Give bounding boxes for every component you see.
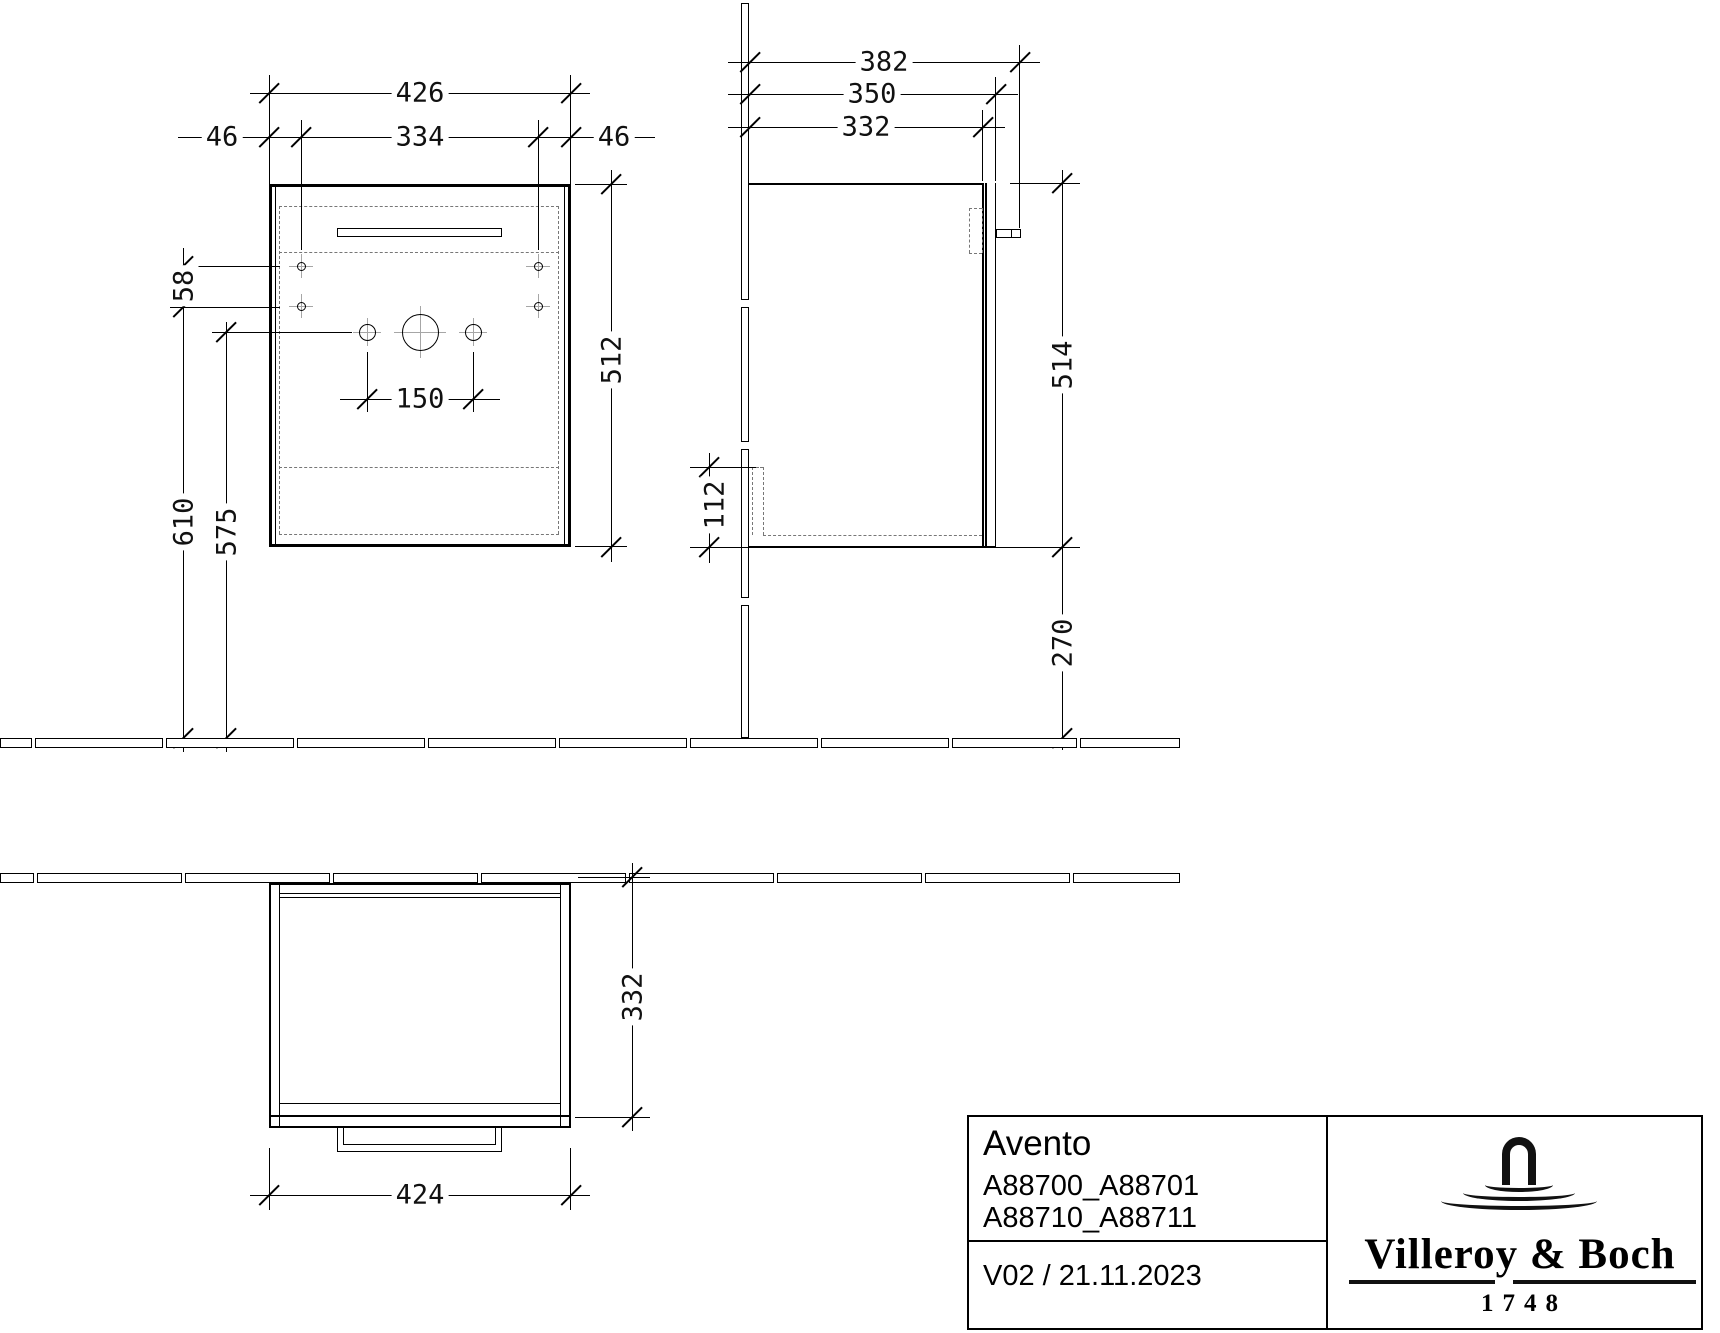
front-dashed-hinge-line — [279, 252, 559, 253]
dim-text-left-offset: 46 — [202, 123, 243, 152]
ext-line — [578, 877, 650, 878]
wall-segment — [741, 605, 749, 738]
dim-text-right-offset: 46 — [594, 123, 635, 152]
mounting-hole-bottom-left — [297, 302, 306, 311]
brand-underline-right — [1513, 1280, 1696, 1284]
ext-line — [1019, 45, 1020, 228]
mounting-hole-bottom-right — [534, 302, 543, 311]
side-bottom-panel-dashed — [763, 535, 982, 536]
mounting-hole-top-right — [534, 262, 543, 271]
dim-text-hole-row-spacing: 58 — [170, 266, 199, 307]
brand-founding-year: 1748 — [1481, 1290, 1567, 1318]
front-handle-slot — [337, 228, 502, 237]
side-hinge-dashed-right — [982, 208, 983, 253]
dim-text-floor-to-lower-holes: 610 — [170, 494, 199, 551]
ext-line — [570, 1148, 571, 1210]
dim-text-height: 512 — [598, 332, 627, 389]
plan-back-panel-line1 — [280, 893, 560, 894]
fixing-hole-right — [465, 324, 482, 341]
ext-line — [538, 120, 539, 250]
side-door-back-line — [985, 183, 987, 547]
title-block-divider-horizontal — [967, 1240, 1327, 1242]
mounting-hole-top-left — [297, 262, 306, 271]
ext-line — [982, 110, 983, 181]
plan-cabinet-outline — [269, 883, 571, 1128]
side-handle — [996, 229, 1021, 238]
dim-text-plan-depth: 332 — [619, 969, 648, 1026]
side-cabinet-bottom — [748, 546, 996, 549]
plan-handle-inner — [343, 1128, 496, 1145]
leader-recess-top — [690, 467, 756, 468]
side-recess-dashed-right — [763, 467, 764, 535]
side-recess-dashed-left — [752, 467, 753, 535]
bottom-ext-line — [690, 547, 750, 548]
title-block-divider-vertical — [1326, 1115, 1328, 1330]
ripple-arc-large — [1441, 1192, 1597, 1210]
front-cabinet-outline — [269, 184, 571, 547]
front-dashed-bottom-panel-line — [279, 467, 559, 468]
side-handle-inner-line — [1011, 230, 1012, 237]
side-hinge-dashed-bottom — [969, 253, 982, 254]
ext-line — [301, 120, 302, 250]
plan-door-back-line — [269, 1115, 571, 1117]
side-hinge-dashed-top — [969, 208, 982, 209]
front-right-panel-inner-line — [564, 187, 565, 544]
dim-text-plan-width: 424 — [392, 1181, 449, 1210]
plan-left-inner-line — [279, 885, 280, 1126]
dim-text-total-width: 426 — [392, 79, 449, 108]
ext-line — [367, 352, 368, 412]
technical-drawing-sheet: 426 46 334 46 512 150 58 610 — [0, 0, 1720, 1333]
side-hinge-dashed-left — [969, 208, 970, 253]
ext-line — [269, 1148, 270, 1210]
dim-text-floor-clearance: 270 — [1049, 615, 1078, 672]
side-cabinet-top — [748, 183, 984, 185]
dim-text-side-height: 514 — [1049, 337, 1078, 394]
plan-back-panel-line2 — [280, 897, 560, 898]
wall-segment — [741, 307, 749, 442]
front-dashed-left — [279, 206, 280, 534]
bottom-ext-line — [996, 547, 1080, 548]
ext-line — [575, 184, 627, 185]
dim-text-hole-span: 334 — [392, 123, 449, 152]
wall-segment — [741, 3, 749, 300]
dim-text-carcass-depth: 332 — [838, 113, 895, 142]
ext-line — [575, 1117, 650, 1118]
plan-carcass-front-line — [280, 1103, 560, 1104]
fixing-hole-left — [359, 324, 376, 341]
front-left-panel-inner-line — [275, 187, 276, 544]
dim-text-floor-to-faucet: 575 — [213, 504, 242, 561]
front-dashed-right — [558, 206, 559, 534]
dim-text-bottom-recess: 112 — [701, 477, 730, 534]
brand-underline-left — [1349, 1280, 1495, 1284]
wall-segment — [741, 449, 749, 598]
plan-right-inner-line — [560, 885, 561, 1126]
dim-text-depth-door: 350 — [844, 80, 901, 109]
ext-line — [575, 546, 627, 547]
leader-lower-holes — [170, 307, 280, 308]
dim-text-faucet-spacing: 150 — [392, 385, 449, 414]
front-dashed-bottom — [279, 534, 559, 535]
dim-text-depth-handle: 382 — [856, 48, 913, 77]
brand-name: Villeroy & Boch — [1364, 1230, 1675, 1279]
product-line-title: Avento — [983, 1124, 1091, 1164]
ext-line — [1010, 183, 1080, 184]
ext-line — [473, 352, 474, 412]
leader-faucet-row — [212, 332, 352, 333]
drain-hole — [402, 314, 439, 351]
front-dashed-top — [279, 206, 559, 207]
revision-date: V02 / 21.11.2023 — [983, 1260, 1202, 1293]
article-numbers-line1: A88700_A88701 — [983, 1170, 1199, 1203]
article-numbers-line2: A88710_A88711 — [983, 1202, 1197, 1235]
